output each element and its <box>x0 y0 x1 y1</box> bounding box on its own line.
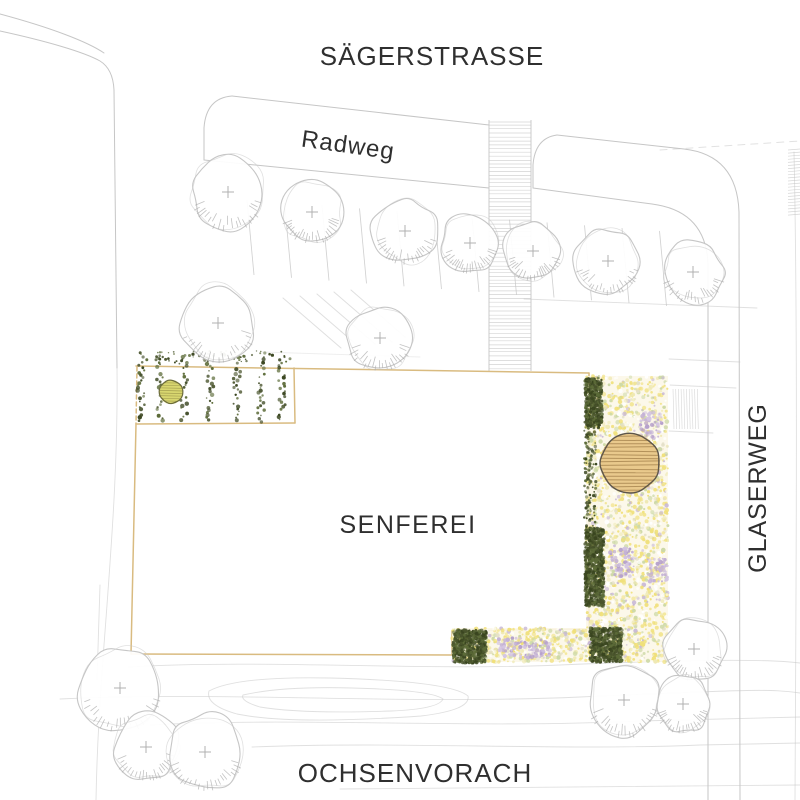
pencil-tree <box>656 674 710 733</box>
street-label-ochsenvorach: OCHSENVORACH <box>298 758 532 788</box>
pencil-tree <box>663 618 727 681</box>
street-label-radweg: Radweg <box>300 126 397 166</box>
glaserweg-far-edge <box>794 152 796 800</box>
pencil-tree <box>503 221 564 281</box>
pencil-tree <box>590 665 660 738</box>
site-plan: SÄGERSTRASSE Radweg SENFEREI GLASERWEG O… <box>0 0 800 800</box>
pencil-tree <box>663 240 725 305</box>
driveway-line <box>524 299 757 308</box>
large-tree-symbol <box>600 433 660 493</box>
road-edge-left-inner <box>0 14 104 53</box>
parking-bay-top-line <box>669 359 740 362</box>
street-label-glaserweg: GLASERWEG <box>744 403 772 573</box>
pencil-tree <box>441 214 499 274</box>
street-label-saegerstrasse: SÄGERSTRASSE <box>320 41 544 71</box>
pencil-tree <box>370 198 438 265</box>
pencil-tree <box>573 228 640 296</box>
pencil-tree <box>346 307 414 371</box>
road-edge-left-lower <box>96 368 117 800</box>
site-plan-page: SÄGERSTRASSE Radweg SENFEREI GLASERWEG O… <box>0 0 800 800</box>
road-edge-left-outer <box>0 31 117 368</box>
building-footprint <box>131 366 589 654</box>
pencil-tree <box>179 282 255 363</box>
building-label-senferei: SENFEREI <box>339 511 476 539</box>
pencil-tree <box>281 179 344 243</box>
